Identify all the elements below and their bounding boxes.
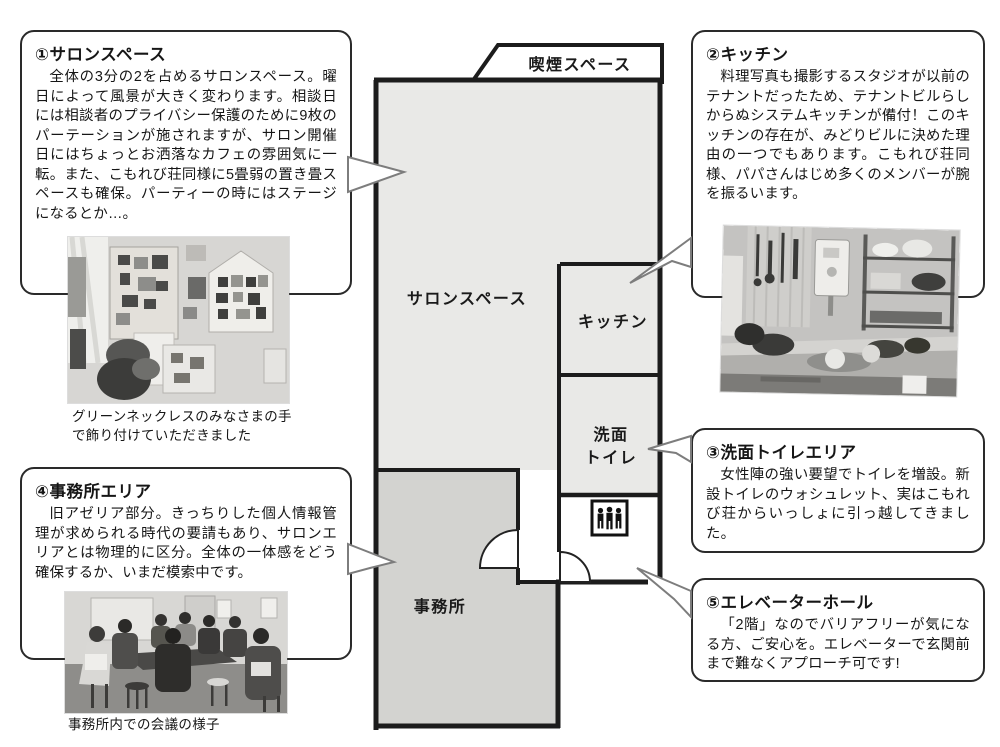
callout-office-body: 旧アゼリア部分。きっちりした個人情報管理が求められる時代の要請もあり、サロンエリ… — [35, 505, 337, 583]
washroom-label-line2: トイレ — [585, 450, 638, 467]
office-meeting-photo — [65, 592, 287, 713]
callout-elevator-body: 「2階」なのでバリアフリーが気になる方、ご安心を。エレベーターで玄関前まで難なく… — [706, 616, 970, 675]
kitchen-photo — [720, 226, 959, 397]
floorplan-page: 喫煙スペース サロンスペース キッチン 洗面 トイレ 事務所 ①サロンスペース … — [0, 0, 1000, 747]
callout-elevator-hall: ⑤エレベーターホール 「2階」なのでバリアフリーが気になる方、ご安心を。エレベー… — [691, 578, 985, 682]
salon-photo — [68, 237, 289, 403]
callout-office-title: ④事務所エリア — [35, 478, 337, 502]
office-label: 事務所 — [414, 597, 467, 616]
callout-kitchen-body: 料理写真も撮影するスタジオが以前のテナントだったため、テナントビルらしからぬシス… — [706, 68, 970, 205]
callout-washroom-title: ③洗面トイレエリア — [706, 439, 970, 463]
callout-washroom-body: 女性陣の強い要望でトイレを増設。新設トイレのウォシュレット、実はこもれび荘からい… — [706, 466, 970, 544]
callout-elevator-title: ⑤エレベーターホール — [706, 589, 970, 613]
callout-washroom: ③洗面トイレエリア 女性陣の強い要望でトイレを増設。新設トイレのウォシュレット、… — [691, 428, 985, 553]
salon-photo-illustration — [68, 237, 289, 403]
smoking-space-label: 喫煙スペース — [528, 56, 631, 74]
corridor — [518, 470, 559, 583]
salon-photo-caption: グリーンネックレスのみなさまの手で飾り付けていただきました — [72, 408, 304, 445]
office-meeting-photo-illustration — [65, 592, 287, 713]
callout-salon-title: ①サロンスペース — [35, 41, 337, 65]
callout-kitchen-title: ②キッチン — [706, 41, 970, 65]
office-photo-caption: 事務所内での会議の様子 — [68, 716, 328, 735]
kitchen-label: キッチン — [578, 314, 648, 331]
washroom-label-line1: 洗面 — [593, 425, 628, 444]
kitchen-photo-illustration — [720, 226, 959, 397]
elevator-passengers-icon — [592, 501, 627, 535]
callout-salon-body: 全体の3分の2を占めるサロンスペース。曜日によって風景が大きく変わります。相談日… — [35, 68, 337, 225]
salon-label: サロンスペース — [407, 290, 527, 308]
